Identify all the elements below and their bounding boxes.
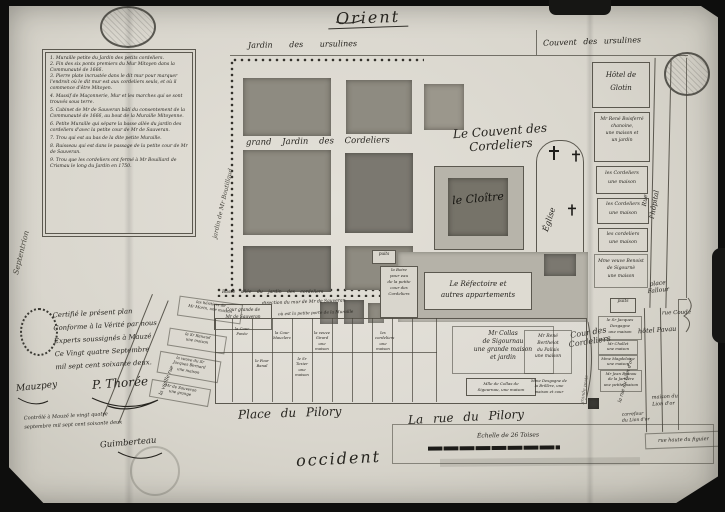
legend-item-8: 8. Ruisseau qui est dans le passage de l… — [50, 144, 188, 156]
legend-item-9: 9. Trou que les cordeliers ont fermé à M… — [50, 158, 188, 170]
house-parcel: les Cordeliers une maison — [596, 166, 648, 194]
house-parcel: Mr Chollet une maison — [598, 340, 638, 355]
strip-divider — [436, 318, 437, 402]
parcel-label: le Sr Texier une maison — [293, 356, 311, 377]
garden-plot — [424, 84, 464, 130]
small-dark-building — [588, 398, 599, 409]
cloister-garth — [448, 178, 508, 236]
garden-plot — [345, 153, 413, 233]
rue-label-vertical: Rue — [641, 194, 649, 207]
legend-box: 1. Muraille petite du Jardin des petits … — [45, 52, 193, 234]
legend-item-2: 2. Fin des six ponts premiers du Mur Mit… — [50, 62, 188, 74]
wax-seal-top-left — [100, 6, 156, 48]
parcel-label: la Cour Mauclerc — [273, 330, 291, 341]
refectory-box: Le Réfectoire et autres appartements — [424, 272, 532, 310]
legend-item-5: 5. Cabinet de Mr de Sauveran bâti du con… — [50, 108, 188, 120]
boundary-line-top — [230, 55, 688, 56]
hotel-glotin-box: Hôtel de Glotin — [592, 62, 650, 108]
courtyard-dark-patch — [544, 254, 576, 276]
document-clip-top — [549, 0, 611, 15]
house-parcel: Mr René Boisferré chanoine, une maison e… — [594, 112, 650, 162]
document-clip-right — [712, 248, 725, 343]
house-parcel: le Sr Jacques Desgagne une maison — [598, 316, 642, 340]
house-parcel: les cordeliers une maison — [598, 228, 648, 252]
strip-divider — [352, 318, 353, 402]
puits-box-right: puits — [610, 298, 636, 313]
certificate-text: Certifié le présent plan Conforme à la V… — [52, 303, 181, 374]
garden-plot — [243, 246, 331, 292]
photo-edge-bottom — [0, 503, 725, 512]
strip-divider — [412, 318, 413, 402]
archival-map-photo: Orient occident Septentrion Jardin des u… — [0, 0, 725, 512]
garden-plot — [243, 150, 331, 235]
parcel-label: le Four Banal — [253, 358, 271, 369]
jardin-ursulines-label: Jardin des ursulines — [248, 39, 357, 50]
maison-lion-dor-label: maison du Lion d'or — [652, 393, 679, 408]
cross-icon — [549, 146, 559, 160]
photo-edge-left — [0, 0, 9, 512]
outer-boundary-right — [686, 58, 687, 298]
compass-east-label: Orient — [328, 7, 409, 30]
outer-boundary-right-lower — [678, 300, 679, 430]
parcel-label: la veuve Girard une maison — [313, 330, 331, 351]
boire-box: la Boire pour eau de la petite cour des … — [380, 266, 418, 318]
rue-coude-label: rue Coudé — [662, 309, 691, 316]
pilory-row-midline — [215, 352, 437, 353]
legend-item-3: 3. Pierre plate incrustée dans le dit mu… — [50, 74, 188, 92]
legend-item-7: 7. Trou qui est au bas de la dite petite… — [50, 136, 188, 142]
legend-item-4: 4. Massif de Maçonnerie, Mur et les marc… — [50, 94, 188, 106]
stamp-faint-round — [130, 446, 180, 496]
outer-boundary-jog — [678, 299, 687, 300]
boundary-line-top-divider — [536, 30, 537, 55]
strip-divider — [392, 318, 393, 402]
garden-plot — [243, 78, 331, 136]
dotted-wall-top — [232, 57, 424, 63]
basse-allee-note: Basse allée du jardin des cordeliers — [222, 290, 323, 295]
cross-icon — [568, 204, 576, 215]
parcel-label: la Cour Pavée — [233, 326, 251, 337]
puits-box: puits — [372, 250, 396, 264]
parcel-label: les cordeliers une maison — [375, 330, 391, 351]
strip-divider — [332, 318, 333, 402]
strip-divider — [372, 318, 373, 402]
cross-icon — [572, 150, 580, 161]
legend-item-6: 6. Petite Muraille qui sépare la basse a… — [50, 122, 188, 134]
photo-edge-top — [0, 0, 725, 6]
garden-plot — [346, 80, 412, 134]
berthelot-parcel: Mr René Berthelot du Pallais une maison — [524, 330, 572, 374]
desgagne-brillere-label: Mme Desgagne de la Brillère, une maison … — [520, 378, 578, 394]
